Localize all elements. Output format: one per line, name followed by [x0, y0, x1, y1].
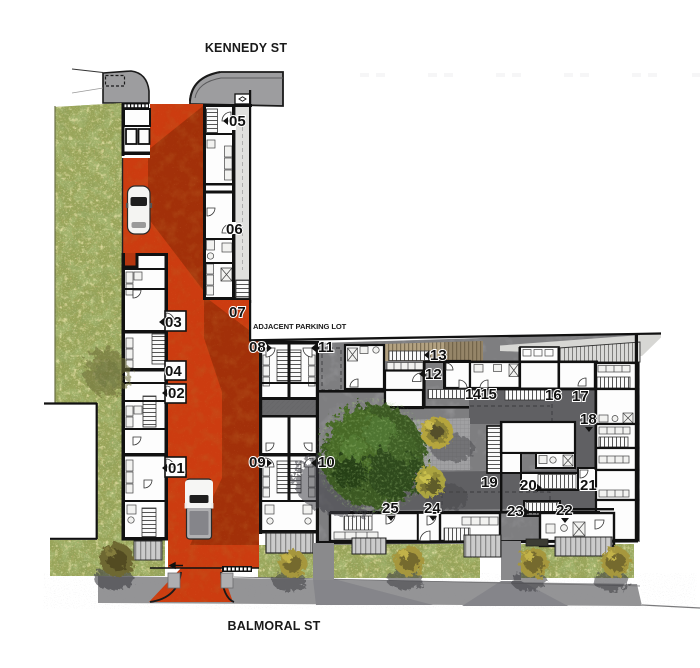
svg-text:08: 08 [249, 339, 266, 356]
svg-text:11: 11 [318, 339, 334, 356]
svg-text:03: 03 [165, 314, 182, 331]
svg-text:ADJACENT PARKING LOT: ADJACENT PARKING LOT [253, 322, 347, 331]
svg-text:BALMORAL ST: BALMORAL ST [228, 619, 321, 633]
svg-text:1415: 1415 [465, 386, 497, 403]
svg-text:02: 02 [168, 385, 185, 402]
svg-text:19: 19 [481, 474, 498, 491]
svg-text:16: 16 [545, 387, 562, 404]
svg-text:09: 09 [249, 454, 266, 471]
svg-text:18: 18 [580, 411, 597, 428]
svg-text:01: 01 [168, 460, 185, 477]
svg-text:13: 13 [430, 347, 447, 364]
svg-text:07: 07 [229, 304, 246, 321]
svg-text:KENNEDY ST: KENNEDY ST [205, 41, 288, 55]
svg-text:05: 05 [229, 113, 246, 130]
svg-text:10: 10 [318, 454, 335, 471]
svg-text:04: 04 [165, 363, 182, 380]
svg-text:12: 12 [425, 366, 442, 383]
svg-text:25: 25 [382, 500, 399, 517]
svg-text:21: 21 [580, 477, 597, 494]
svg-text:22: 22 [556, 502, 573, 519]
svg-text:20: 20 [520, 477, 537, 494]
svg-text:24: 24 [424, 500, 441, 517]
svg-text:23: 23 [507, 503, 524, 520]
svg-text:17: 17 [572, 388, 589, 405]
svg-text:06: 06 [226, 221, 243, 238]
